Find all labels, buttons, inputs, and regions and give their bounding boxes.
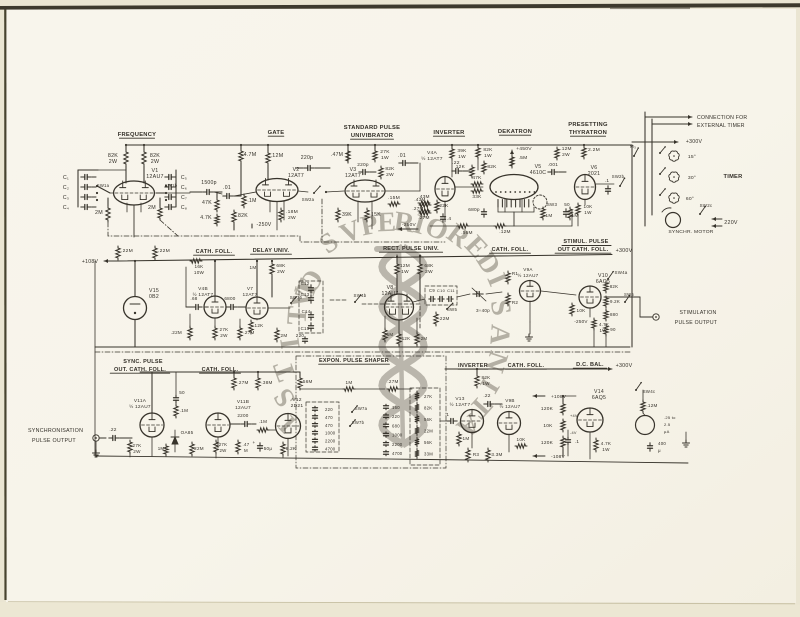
svg-text:V12: V12 <box>292 397 302 403</box>
svg-text:.1: .1 <box>575 439 580 444</box>
svg-text:1W: 1W <box>599 328 607 333</box>
svg-text:R3: R3 <box>473 452 480 457</box>
svg-text:1000: 1000 <box>325 431 336 436</box>
svg-text:12K: 12K <box>456 164 466 170</box>
svg-text:1M: 1M <box>463 436 470 441</box>
svg-text:1W: 1W <box>482 381 490 386</box>
svg-text:DELAY UNIV.: DELAY UNIV. <box>253 248 290 254</box>
svg-text:SW1a: SW1a <box>97 183 110 188</box>
svg-text:470: 470 <box>325 423 333 428</box>
svg-text:2200: 2200 <box>325 439 336 444</box>
svg-text:680p: 680p <box>468 207 480 213</box>
svg-text:.01: .01 <box>398 153 406 159</box>
svg-text:V9A: V9A <box>523 267 533 272</box>
svg-text:10K: 10K <box>517 437 527 442</box>
svg-text:FREQUENCY: FREQUENCY <box>118 132 157 138</box>
svg-text:SYNCHR. MOTOR: SYNCHR. MOTOR <box>668 229 713 235</box>
svg-text:.12M: .12M <box>271 153 284 159</box>
svg-text:UNIVIBRATOR: UNIVIBRATOR <box>351 133 394 139</box>
svg-text:33M: 33M <box>424 452 433 457</box>
svg-text:12AU7: 12AU7 <box>382 291 399 297</box>
svg-text:22K: 22K <box>439 203 449 209</box>
svg-text:56K: 56K <box>424 440 432 445</box>
svg-text:6AQ5: 6AQ5 <box>592 395 606 401</box>
svg-text:2W: 2W <box>220 333 228 338</box>
svg-text:+450V: +450V <box>516 146 532 152</box>
svg-text:PULSE OUTPUT: PULSE OUTPUT <box>32 438 76 444</box>
svg-text:.12M: .12M <box>499 229 511 235</box>
svg-text:CONNECTION FOR: CONNECTION FOR <box>697 115 747 121</box>
svg-text:.22: .22 <box>483 393 490 399</box>
svg-text:12AT7: 12AT7 <box>288 173 304 179</box>
svg-text:C13: C13 <box>301 292 310 297</box>
svg-text:μ: μ <box>658 448 661 453</box>
svg-text:SW7b: SW7b <box>352 420 365 425</box>
svg-text:22M: 22M <box>194 446 204 451</box>
svg-text:16K: 16K <box>195 264 205 269</box>
svg-text:.15M: .15M <box>388 195 400 201</box>
svg-text:M: M <box>244 448 248 453</box>
svg-text:68K: 68K <box>276 263 286 269</box>
svg-text:GATE: GATE <box>268 130 285 136</box>
svg-text:½ 12AT7: ½ 12AT7 <box>421 155 442 162</box>
svg-text:27K: 27K <box>219 442 228 447</box>
svg-text:CATH. FOLL.: CATH. FOLL. <box>508 363 545 369</box>
svg-text:.27M: .27M <box>412 206 423 211</box>
svg-text:27K: 27K <box>220 327 230 332</box>
svg-text:27K: 27K <box>133 443 143 448</box>
svg-text:4700: 4700 <box>392 451 403 456</box>
svg-text:C14: C14 <box>302 309 311 314</box>
svg-text:.22M: .22M <box>438 316 449 321</box>
svg-text:33K: 33K <box>472 194 482 200</box>
svg-text:SW2b: SW2b <box>612 174 625 179</box>
svg-text:2.5: 2.5 <box>664 422 671 427</box>
svg-text:82K: 82K <box>385 166 395 172</box>
svg-text:C11: C11 <box>447 288 455 293</box>
svg-text:8.2K: 8.2K <box>286 446 297 451</box>
svg-text:-250V: -250V <box>402 222 417 228</box>
svg-text:47K: 47K <box>472 175 482 181</box>
svg-text:1M: 1M <box>250 265 257 270</box>
svg-text:15°: 15° <box>688 154 696 160</box>
svg-text:EXTERNAL TIMER: EXTERNAL TIMER <box>697 123 745 129</box>
svg-text:.47M: .47M <box>331 152 343 158</box>
svg-text:0B2: 0B2 <box>149 294 159 300</box>
svg-text:SW2a: SW2a <box>302 197 315 202</box>
svg-text:.01: .01 <box>223 185 231 191</box>
svg-text:SW7a: SW7a <box>355 406 368 411</box>
svg-text:M₃: M₃ <box>630 144 636 149</box>
svg-text:12M: 12M <box>400 263 410 269</box>
svg-text:82K: 82K <box>610 284 619 289</box>
svg-text:1M: 1M <box>158 446 165 451</box>
svg-text:2.2M: 2.2M <box>588 147 600 153</box>
svg-text:.4: .4 <box>447 216 452 222</box>
svg-text:82K: 82K <box>424 406 432 411</box>
svg-text:90: 90 <box>610 327 616 332</box>
svg-text:.22M: .22M <box>121 248 133 254</box>
svg-text:2W: 2W <box>151 159 160 165</box>
svg-text:4610C: 4610C <box>530 170 546 176</box>
svg-text:1W: 1W <box>401 269 409 275</box>
svg-text:2M: 2M <box>421 336 428 341</box>
svg-text:10K: 10K <box>577 308 587 313</box>
svg-text:.18M: .18M <box>286 209 298 215</box>
svg-text:.27M: .27M <box>387 379 398 384</box>
svg-text:1000: 1000 <box>392 433 403 438</box>
svg-text:4700: 4700 <box>325 447 336 452</box>
svg-text:STIMULATION: STIMULATION <box>680 310 717 316</box>
svg-text:C10: C10 <box>437 288 446 293</box>
svg-text:C₈: C₈ <box>181 205 187 211</box>
svg-text:.47: .47 <box>243 442 250 447</box>
svg-text:1W: 1W <box>484 153 492 159</box>
svg-text:4.7K: 4.7K <box>601 441 612 446</box>
svg-text:.5M: .5M <box>518 155 527 161</box>
svg-text:C₅: C₅ <box>181 175 187 181</box>
svg-text:1M: 1M <box>346 380 353 385</box>
svg-text:1W: 1W <box>458 154 466 160</box>
svg-text:9.2K: 9.2K <box>610 299 620 304</box>
svg-text:1W: 1W <box>584 210 592 215</box>
svg-text:60°: 60° <box>686 196 694 202</box>
svg-text:+108V: +108V <box>551 394 567 400</box>
svg-text:-250V: -250V <box>257 222 272 228</box>
svg-text:4.7K: 4.7K <box>599 322 609 327</box>
svg-text:.43M: .43M <box>414 197 425 202</box>
svg-text:PULSE OUTPUT: PULSE OUTPUT <box>675 320 718 326</box>
svg-text:.001: .001 <box>548 162 558 168</box>
svg-text:V11B: V11B <box>237 399 249 405</box>
svg-text:SW3: SW3 <box>547 202 558 207</box>
svg-text:27K: 27K <box>424 394 432 399</box>
svg-text:4.7K: 4.7K <box>200 215 212 221</box>
svg-text:.1M: .1M <box>247 198 256 204</box>
svg-text:2200: 2200 <box>237 413 248 418</box>
svg-text:12K: 12K <box>402 336 411 341</box>
svg-text:C₁: C₁ <box>63 175 69 181</box>
svg-text:27K: 27K <box>380 149 390 155</box>
svg-text:.12M: .12M <box>646 403 657 408</box>
svg-text:V7: V7 <box>247 286 253 292</box>
svg-text:½ 12AU7: ½ 12AU7 <box>129 403 151 410</box>
svg-text:OA85: OA85 <box>181 430 194 435</box>
svg-text:2200: 2200 <box>392 442 403 447</box>
svg-text:39K: 39K <box>342 212 352 218</box>
svg-text:V4A: V4A <box>427 150 438 156</box>
svg-text:1W: 1W <box>381 155 389 161</box>
svg-text:2W: 2W <box>288 215 296 221</box>
svg-text:3.3M: 3.3M <box>491 452 502 457</box>
svg-text:2M: 2M <box>95 210 103 216</box>
svg-text:R2: R2 <box>512 300 519 305</box>
svg-text:50μ: 50μ <box>264 446 273 451</box>
svg-text:220V: 220V <box>724 220 738 226</box>
svg-text:160: 160 <box>392 405 400 410</box>
svg-text:STANDARD PULSE: STANDARD PULSE <box>344 125 400 131</box>
svg-text:CATH. FOLL.: CATH. FOLL. <box>196 249 233 255</box>
svg-text:SYNC. PULSE: SYNC. PULSE <box>123 359 163 365</box>
svg-text:.56M: .56M <box>301 379 312 384</box>
svg-text:V4B: V4B <box>198 286 208 292</box>
svg-text:1W: 1W <box>602 447 610 452</box>
svg-text:68K: 68K <box>424 263 434 269</box>
svg-text:220: 220 <box>392 414 400 419</box>
svg-text:μA: μA <box>664 429 670 434</box>
svg-text:INVERTER: INVERTER <box>433 130 465 136</box>
svg-text:2021: 2021 <box>588 171 600 177</box>
svg-text:OUT CATH. FOLL.: OUT CATH. FOLL. <box>558 247 609 253</box>
svg-text:2W: 2W <box>386 172 394 178</box>
svg-text:2M: 2M <box>148 205 156 211</box>
svg-text:12AU7: 12AU7 <box>146 174 164 180</box>
svg-text:½ 12AU7: ½ 12AU7 <box>518 272 539 278</box>
svg-text:82K: 82K <box>482 375 492 380</box>
svg-text:.1: .1 <box>445 412 450 417</box>
svg-text:SW5: SW5 <box>447 307 458 312</box>
svg-text:2W: 2W <box>109 159 118 165</box>
svg-text:6AQ5: 6AQ5 <box>596 279 610 285</box>
svg-text:SW6: SW6 <box>624 292 634 297</box>
svg-text:1M: 1M <box>572 213 579 218</box>
svg-text:12AU7: 12AU7 <box>235 405 251 411</box>
svg-text:220p: 220p <box>301 155 313 161</box>
svg-text:-4V: -4V <box>570 431 577 435</box>
svg-text:220: 220 <box>296 333 305 338</box>
svg-text:470: 470 <box>325 415 333 420</box>
svg-text:C₆: C₆ <box>181 185 187 191</box>
svg-text:220: 220 <box>325 407 333 412</box>
svg-text:.22: .22 <box>109 427 116 433</box>
svg-text:82K: 82K <box>483 147 493 153</box>
svg-text:15K: 15K <box>371 212 381 218</box>
svg-text:12AT7: 12AT7 <box>345 173 361 179</box>
svg-text:C₄: C₄ <box>63 205 69 211</box>
svg-text:EXPON. PULSE SHAPER: EXPON. PULSE SHAPER <box>319 358 389 364</box>
svg-text:2D21: 2D21 <box>291 403 304 409</box>
svg-text:220p: 220p <box>357 162 369 168</box>
svg-text:680: 680 <box>392 423 400 428</box>
svg-text:C₇: C₇ <box>181 195 187 201</box>
svg-text:400: 400 <box>658 441 666 446</box>
svg-text:.12M: .12M <box>560 146 572 152</box>
svg-text:10K: 10K <box>543 423 553 429</box>
svg-text:56K: 56K <box>424 417 432 422</box>
svg-text:120K: 120K <box>541 406 554 412</box>
svg-text:½ 12AT7: ½ 12AT7 <box>450 401 471 408</box>
svg-text:1500p: 1500p <box>201 180 217 186</box>
svg-text:3÷40p: 3÷40p <box>476 308 490 313</box>
svg-text:SW4c: SW4c <box>643 389 656 394</box>
svg-text:DEKATRON: DEKATRON <box>498 129 532 135</box>
svg-text:10W: 10W <box>194 270 205 275</box>
svg-text:.1M: .1M <box>259 419 267 424</box>
svg-text:12AT7: 12AT7 <box>243 292 258 298</box>
svg-text:.27M: .27M <box>237 380 248 385</box>
svg-text:.1: .1 <box>605 178 610 184</box>
svg-text:.68: .68 <box>190 296 197 301</box>
svg-text:82K: 82K <box>238 213 248 219</box>
svg-text:2W: 2W <box>219 448 227 453</box>
svg-text:C₃: C₃ <box>63 195 69 201</box>
svg-text:CATH. FOLL.: CATH. FOLL. <box>492 247 529 253</box>
svg-text:INVERTER: INVERTER <box>458 363 488 369</box>
svg-text:½ 12AU7: ½ 12AU7 <box>500 403 521 409</box>
svg-text:SW4a: SW4a <box>615 270 628 275</box>
svg-text:PRESETTING: PRESETTING <box>568 122 608 128</box>
svg-text:2W: 2W <box>425 269 433 275</box>
svg-text:+300V: +300V <box>616 248 633 254</box>
svg-text:50: 50 <box>179 390 185 395</box>
svg-text:V11A: V11A <box>134 398 147 404</box>
svg-text:V9B: V9B <box>505 398 514 403</box>
svg-text:1M: 1M <box>546 213 553 218</box>
svg-text:V13: V13 <box>455 396 464 402</box>
svg-text:C15: C15 <box>301 326 310 331</box>
svg-text:D.C. BAL.: D.C. BAL. <box>576 362 604 368</box>
svg-text:SW2c: SW2c <box>700 203 713 208</box>
svg-text:C12: C12 <box>301 281 310 286</box>
svg-text:1M: 1M <box>387 332 394 337</box>
svg-text:C₂: C₂ <box>63 185 69 191</box>
svg-text:2M: 2M <box>281 333 288 338</box>
svg-text:50: 50 <box>564 202 570 207</box>
svg-text:+300V: +300V <box>686 139 703 145</box>
svg-text:STIMUL. PULSE: STIMUL. PULSE <box>563 239 608 245</box>
svg-text:.25 to: .25 to <box>664 415 676 420</box>
svg-text:.56M: .56M <box>461 230 473 236</box>
svg-text:82K: 82K <box>487 164 497 170</box>
svg-text:+108V: +108V <box>82 259 99 265</box>
svg-text:.1M: .1M <box>180 408 188 413</box>
svg-text:47K: 47K <box>202 200 212 206</box>
svg-text:.22M: .22M <box>171 330 182 335</box>
svg-text:120K: 120K <box>541 440 554 446</box>
svg-text:TIMER: TIMER <box>724 174 743 180</box>
svg-text:22M: 22M <box>424 429 433 434</box>
svg-text:6800: 6800 <box>224 296 235 301</box>
svg-text:2W: 2W <box>562 152 570 158</box>
svg-text:4.7M: 4.7M <box>244 152 257 158</box>
svg-text:-250V: -250V <box>574 319 588 324</box>
svg-text:SW4b: SW4b <box>354 293 367 298</box>
svg-text:880: 880 <box>610 312 618 317</box>
svg-text:39K: 39K <box>457 148 467 154</box>
svg-text:C9: C9 <box>429 288 435 293</box>
svg-text:2W: 2W <box>133 449 141 454</box>
svg-text:THYRATRON: THYRATRON <box>569 130 607 136</box>
svg-text:A: A <box>483 323 515 346</box>
svg-text:2W: 2W <box>277 269 285 275</box>
svg-text:.38M: .38M <box>261 380 272 385</box>
svg-text:RECT. PULSE UNIV.: RECT. PULSE UNIV. <box>383 246 439 252</box>
svg-text:+300V: +300V <box>616 363 633 369</box>
svg-text:SYNCHRONISATION: SYNCHRONISATION <box>28 428 83 434</box>
svg-text:+: + <box>253 440 256 445</box>
svg-text:.22M: .22M <box>158 248 170 254</box>
svg-text:12K: 12K <box>255 323 265 328</box>
svg-text:30°: 30° <box>688 175 696 181</box>
